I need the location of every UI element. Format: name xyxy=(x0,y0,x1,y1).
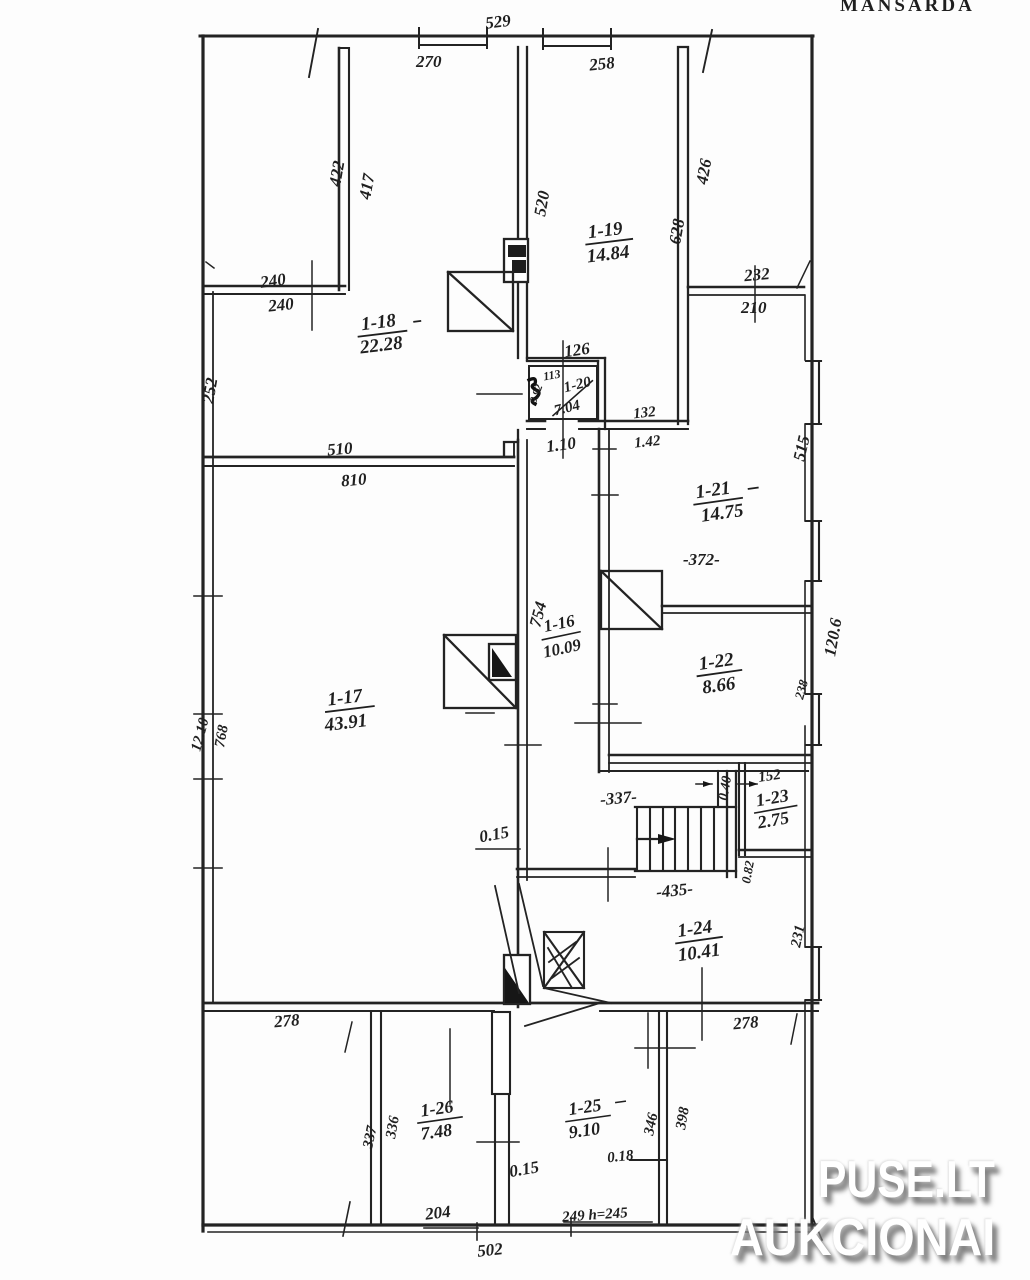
svg-text:132: 132 xyxy=(632,404,657,422)
svg-text:336: 336 xyxy=(383,1114,403,1140)
svg-text:628: 628 xyxy=(665,217,688,246)
svg-text:43.91: 43.91 xyxy=(322,710,368,736)
svg-text:-435-: -435- xyxy=(655,879,694,902)
svg-text:1.42: 1.42 xyxy=(633,433,661,452)
svg-text:12.10: 12.10 xyxy=(188,716,212,753)
svg-text:422: 422 xyxy=(325,159,348,189)
svg-text:0.92: 0.92 xyxy=(528,382,546,405)
svg-text:14.84: 14.84 xyxy=(586,241,631,267)
svg-text:515: 515 xyxy=(789,433,813,463)
svg-text:210: 210 xyxy=(740,298,767,317)
svg-text:1-19: 1-19 xyxy=(587,218,625,243)
svg-text:MANSARDA: MANSARDA xyxy=(840,0,975,16)
svg-text:10.41: 10.41 xyxy=(677,939,722,966)
svg-text:1-18: 1-18 xyxy=(360,310,398,335)
svg-text:9.10: 9.10 xyxy=(567,1118,601,1142)
svg-text:8.66: 8.66 xyxy=(701,673,737,698)
svg-text:238: 238 xyxy=(791,678,811,702)
svg-text:240: 240 xyxy=(266,294,295,316)
svg-text:426: 426 xyxy=(692,157,715,187)
svg-text:398: 398 xyxy=(673,1105,693,1131)
svg-text:337: 337 xyxy=(360,1124,381,1151)
svg-text:0.15: 0.15 xyxy=(508,1157,541,1181)
svg-text:2.75: 2.75 xyxy=(755,807,790,832)
svg-text:278: 278 xyxy=(731,1012,760,1033)
svg-text:0.15: 0.15 xyxy=(478,822,511,846)
svg-text:240: 240 xyxy=(258,269,287,292)
svg-text:502: 502 xyxy=(476,1239,504,1261)
svg-text:-372-: -372- xyxy=(683,550,720,569)
svg-text:1-25: 1-25 xyxy=(567,1095,602,1119)
svg-text:120.6: 120.6 xyxy=(820,616,845,657)
svg-text:126: 126 xyxy=(563,339,591,361)
svg-text:0.18: 0.18 xyxy=(606,1148,634,1167)
svg-text:270: 270 xyxy=(415,52,442,71)
svg-text:152: 152 xyxy=(757,767,782,786)
svg-text:232: 232 xyxy=(742,264,771,285)
svg-text:7.04: 7.04 xyxy=(552,397,582,419)
svg-text:22.28: 22.28 xyxy=(358,332,404,358)
svg-text:204: 204 xyxy=(423,1202,452,1224)
svg-text:252: 252 xyxy=(198,376,221,406)
svg-text:0.82: 0.82 xyxy=(738,859,757,885)
svg-text:510: 510 xyxy=(326,438,354,459)
svg-text:258: 258 xyxy=(587,53,616,75)
svg-text:113: 113 xyxy=(542,367,562,384)
svg-text:810: 810 xyxy=(340,469,368,490)
svg-text:1-26: 1-26 xyxy=(419,1096,454,1120)
svg-text:1-23: 1-23 xyxy=(754,785,790,810)
svg-text:768: 768 xyxy=(212,723,232,748)
svg-text:1.10: 1.10 xyxy=(545,433,578,456)
svg-text:417: 417 xyxy=(355,171,379,202)
svg-text:529: 529 xyxy=(484,11,512,33)
svg-text:1-17: 1-17 xyxy=(326,685,365,710)
svg-text:0.40: 0.40 xyxy=(716,775,735,802)
svg-text:7.48: 7.48 xyxy=(419,1120,453,1144)
svg-text:278: 278 xyxy=(272,1010,301,1031)
svg-text:520: 520 xyxy=(530,189,553,218)
svg-text:14.75: 14.75 xyxy=(700,500,746,527)
svg-text:-337-: -337- xyxy=(599,787,638,809)
